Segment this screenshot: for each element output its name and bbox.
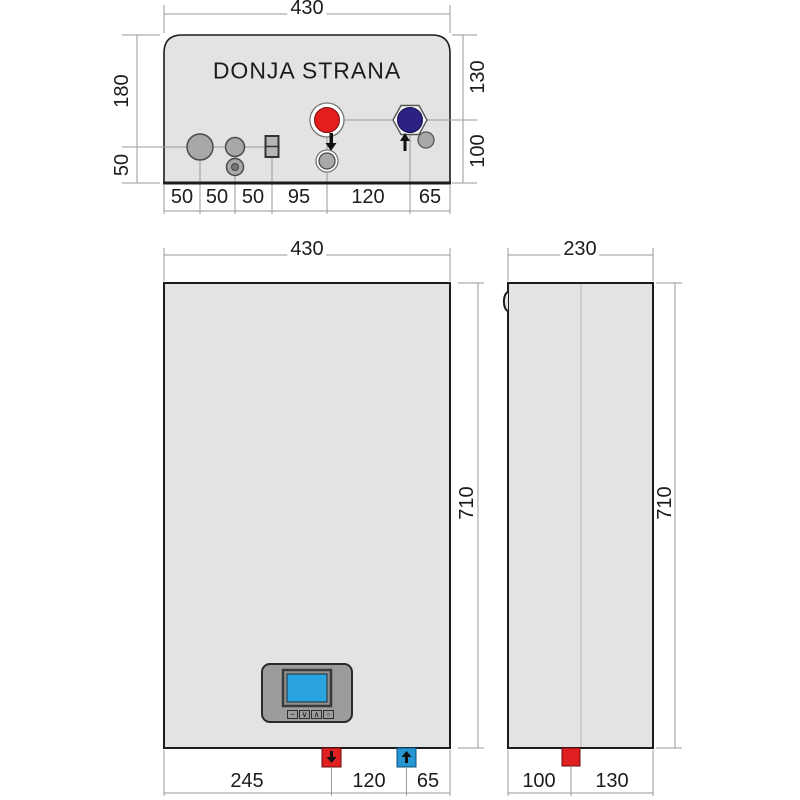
dim-label-front-height: 710 bbox=[457, 486, 477, 519]
small-port-circle bbox=[418, 132, 434, 148]
dim-label: 130 bbox=[592, 771, 631, 791]
cold-port bbox=[398, 108, 423, 133]
display-button-up: ∧ bbox=[311, 710, 322, 719]
view-title-bottom-side: DONJA STRANA bbox=[213, 60, 401, 83]
display-button-ok: ▫ bbox=[323, 710, 334, 719]
display-button-minus: − bbox=[287, 710, 298, 719]
drawing-linework bbox=[0, 0, 800, 800]
dim-label: 50 bbox=[168, 187, 196, 207]
dim-label-top-width: 430 bbox=[287, 0, 326, 18]
ringed-port-center bbox=[232, 164, 239, 171]
dim-label-side-height: 710 bbox=[655, 486, 675, 519]
mounting-tab bbox=[504, 292, 508, 311]
side-stub-red bbox=[562, 748, 580, 766]
dim-label: 120 bbox=[349, 771, 388, 791]
dim-label: 245 bbox=[227, 771, 266, 791]
cable-gland-small bbox=[226, 138, 245, 157]
dim-label: 95 bbox=[285, 187, 313, 207]
dim-label: 180 bbox=[112, 74, 132, 107]
display-screen bbox=[287, 674, 327, 702]
cable-gland-large bbox=[187, 134, 213, 160]
bottom-side-view bbox=[122, 5, 477, 214]
dim-label: 65 bbox=[416, 187, 444, 207]
display-button-down: ∨ bbox=[299, 710, 310, 719]
dim-label: 100 bbox=[519, 771, 558, 791]
side-view bbox=[504, 248, 682, 796]
dim-label: 120 bbox=[348, 187, 387, 207]
dim-label-front-width: 430 bbox=[287, 239, 326, 259]
safety-port bbox=[319, 153, 335, 169]
dim-label: 50 bbox=[112, 154, 132, 176]
dim-label: 130 bbox=[468, 60, 488, 93]
dim-label: 100 bbox=[468, 134, 488, 167]
dim-label: 65 bbox=[414, 771, 442, 791]
dim-label-side-width: 230 bbox=[560, 239, 599, 259]
dim-label: 50 bbox=[239, 187, 267, 207]
dim-label: 50 bbox=[203, 187, 231, 207]
hot-port bbox=[315, 108, 340, 133]
technical-drawing-boiler: 430 DONJA STRANA 180 50 130 100 50 50 50… bbox=[0, 0, 800, 800]
